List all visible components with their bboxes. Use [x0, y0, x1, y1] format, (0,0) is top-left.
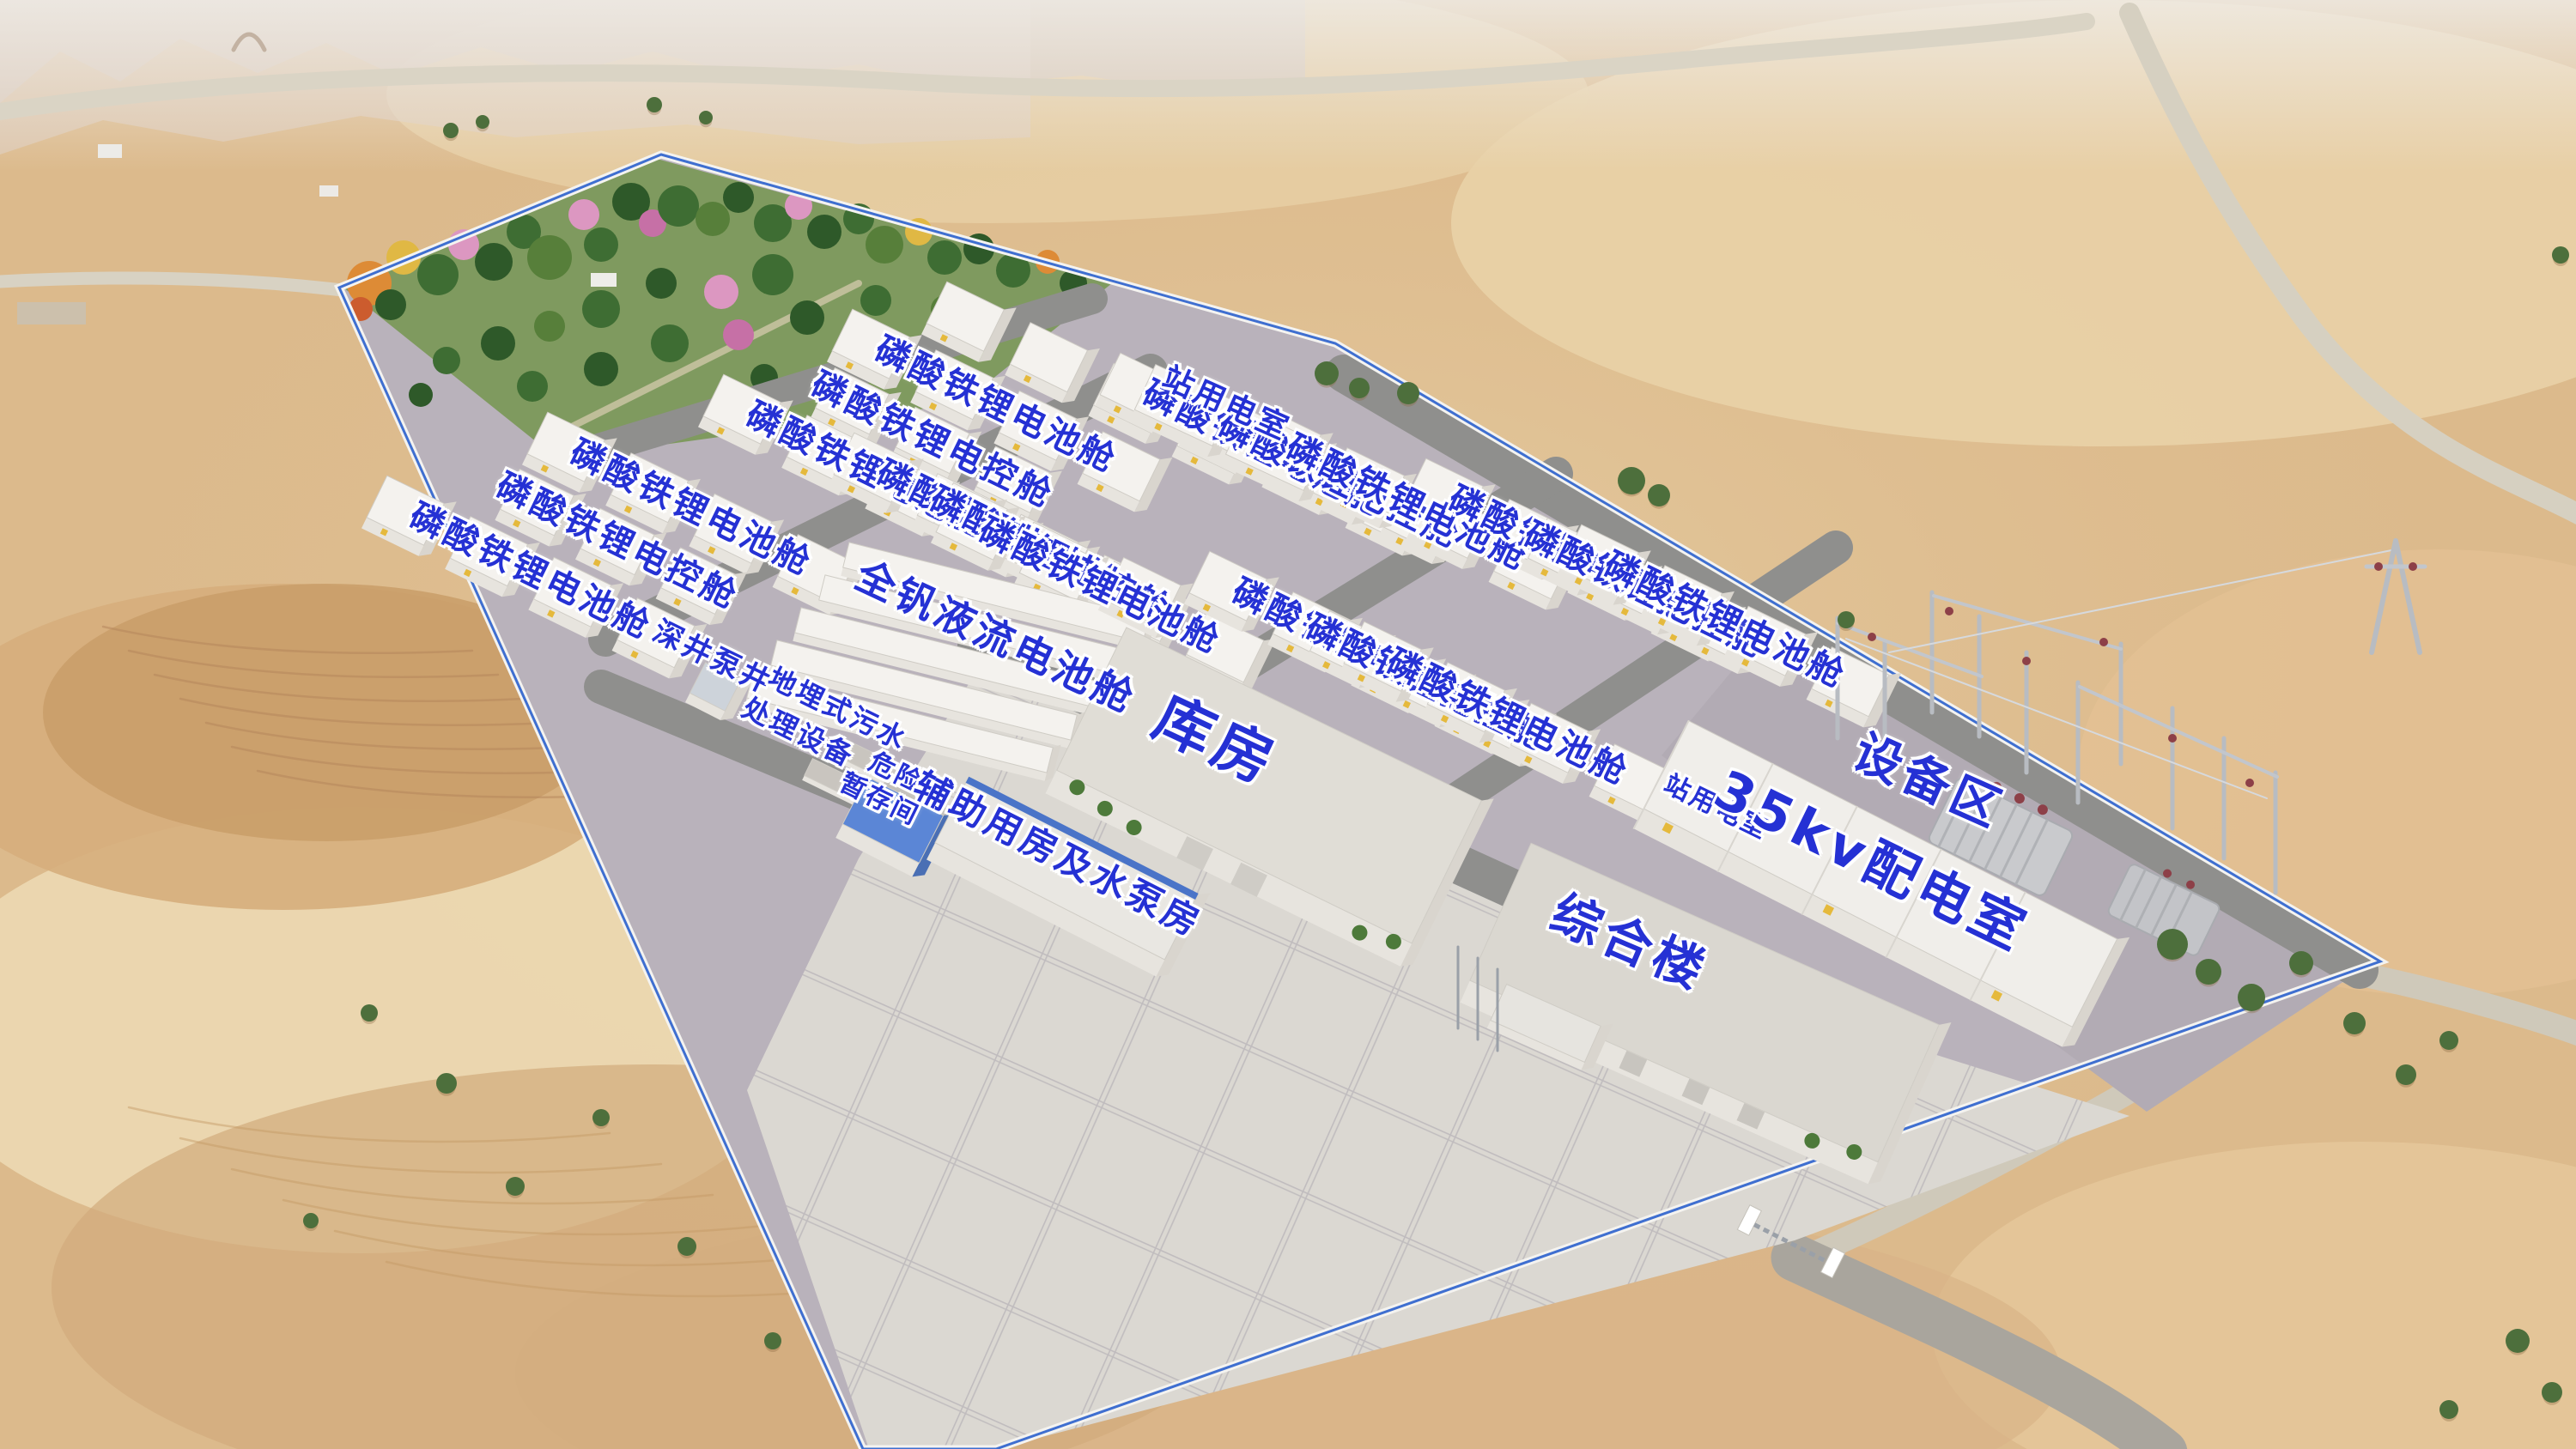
scene-canvas [0, 0, 2576, 1449]
aerial-site-rendering: 磷酸铁锂电池舱 磷酸铁锂电控舱 磷酸铁锂电池舱 磷酸铁锂电池舱 磷酸铁锂电控舱 … [0, 0, 2576, 1449]
